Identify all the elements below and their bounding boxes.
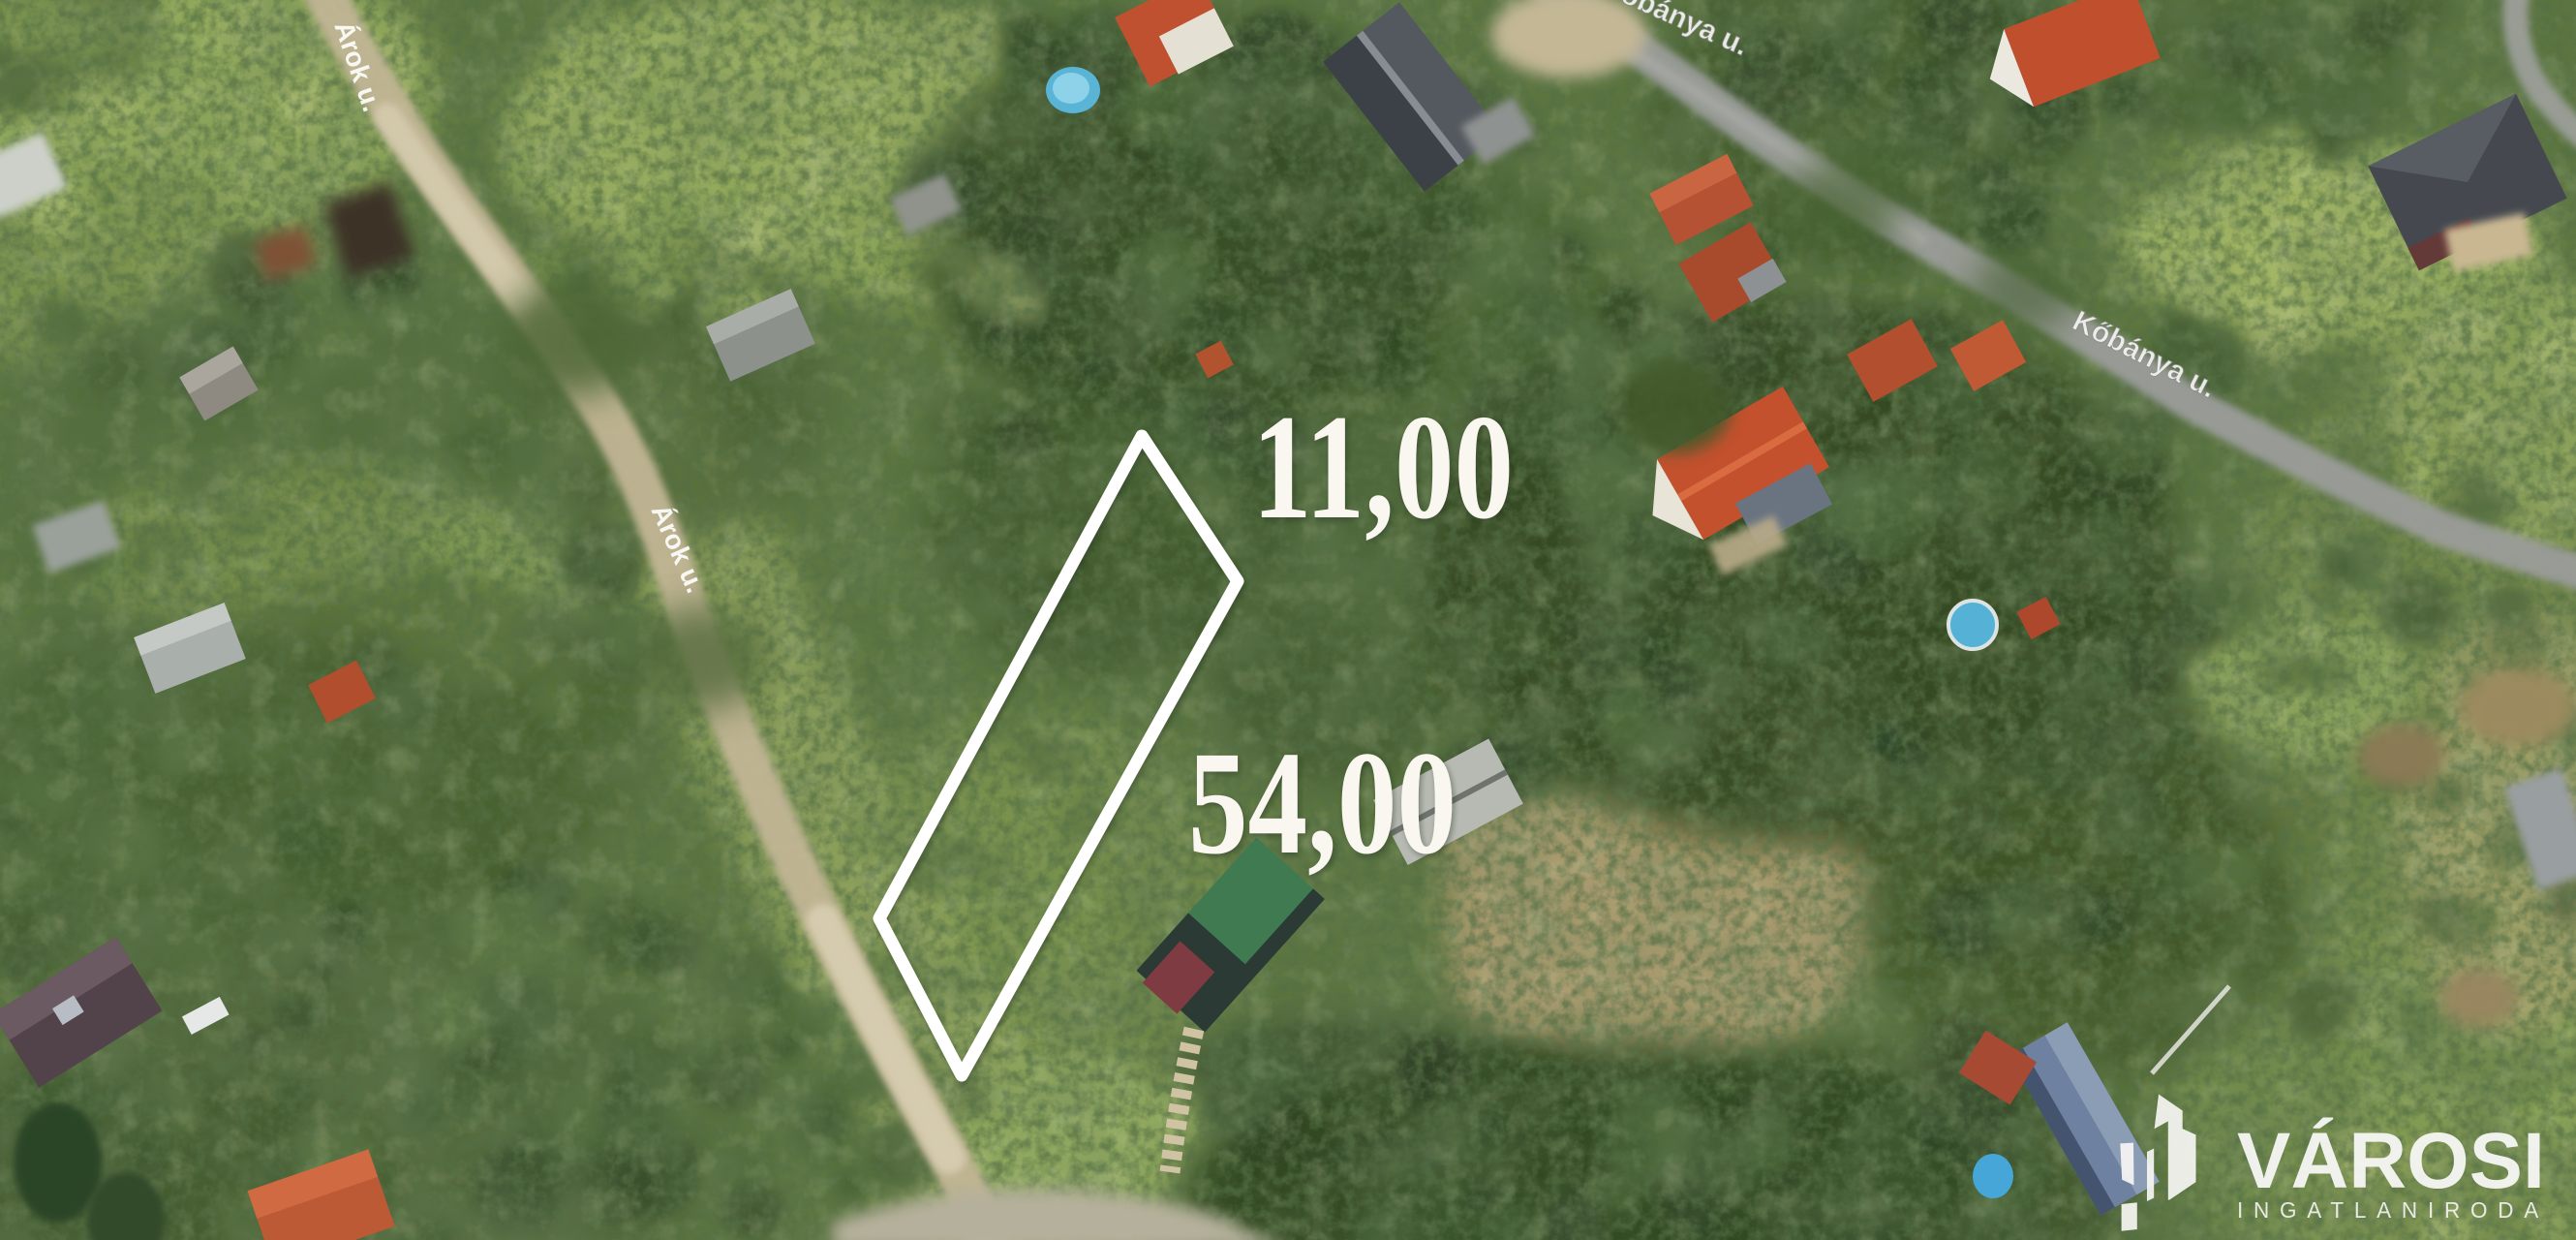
svg-text:VÁROSI: VÁROSI	[2237, 1117, 2545, 1205]
svg-text:54,00: 54,00	[1188, 722, 1457, 885]
svg-text:INGATLANIRODA: INGATLANIRODA	[2237, 1197, 2549, 1223]
svg-text:11,00: 11,00	[1252, 384, 1514, 550]
